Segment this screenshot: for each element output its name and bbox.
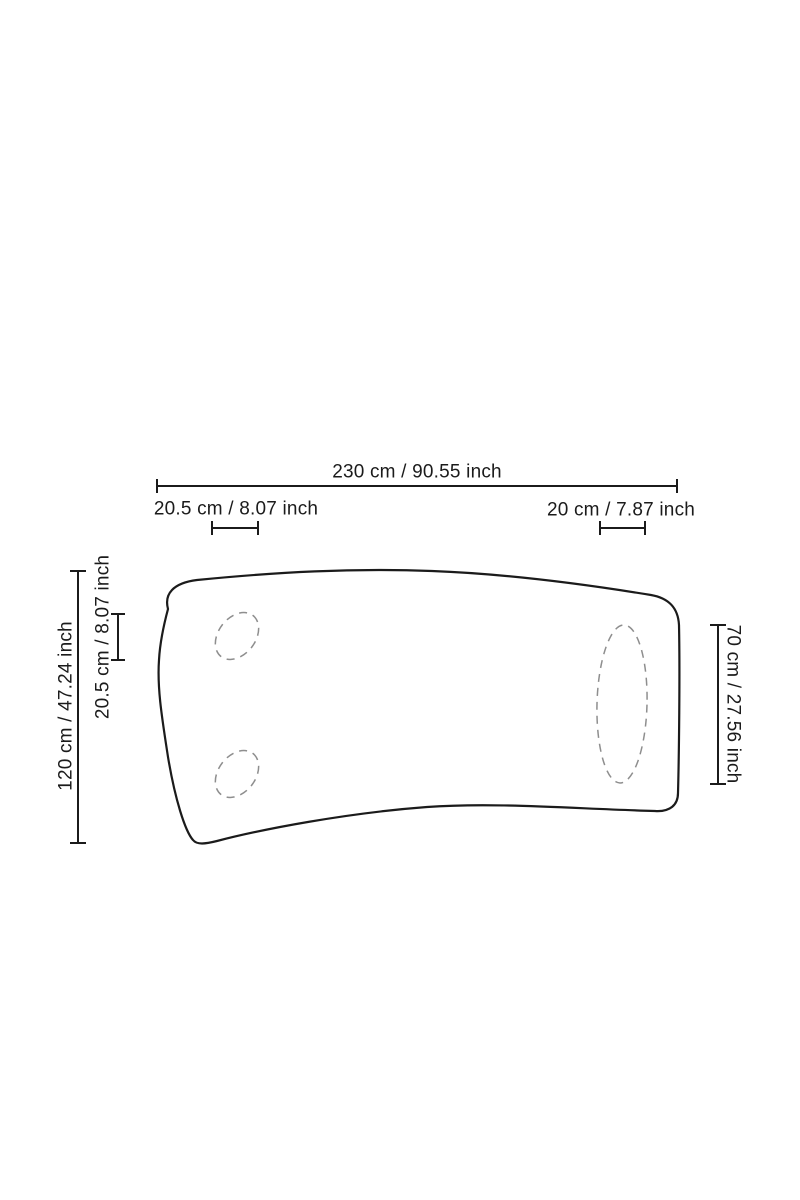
table-top-outline (159, 570, 680, 843)
dim-label-right-corner-width: 20 cm / 7.87 inch (547, 501, 695, 520)
dim-line-left-corner-width (212, 521, 258, 535)
dim-label-left-corner-width: 20.5 cm / 8.07 inch (154, 500, 318, 519)
dim-label-left-corner-depth: 20.5 cm / 8.07 inch (94, 555, 113, 719)
dimension-diagram: 230 cm / 90.55 inch 20.5 cm / 8.07 inch … (0, 0, 800, 1200)
dim-line-right-corner-width (600, 521, 645, 535)
diagram-artwork (0, 0, 800, 1200)
dim-label-total-depth: 120 cm / 47.24 inch (57, 621, 76, 791)
dim-label-right-depth: 70 cm / 27.56 inch (724, 625, 743, 784)
dim-label-total-width: 230 cm / 90.55 inch (332, 463, 502, 482)
